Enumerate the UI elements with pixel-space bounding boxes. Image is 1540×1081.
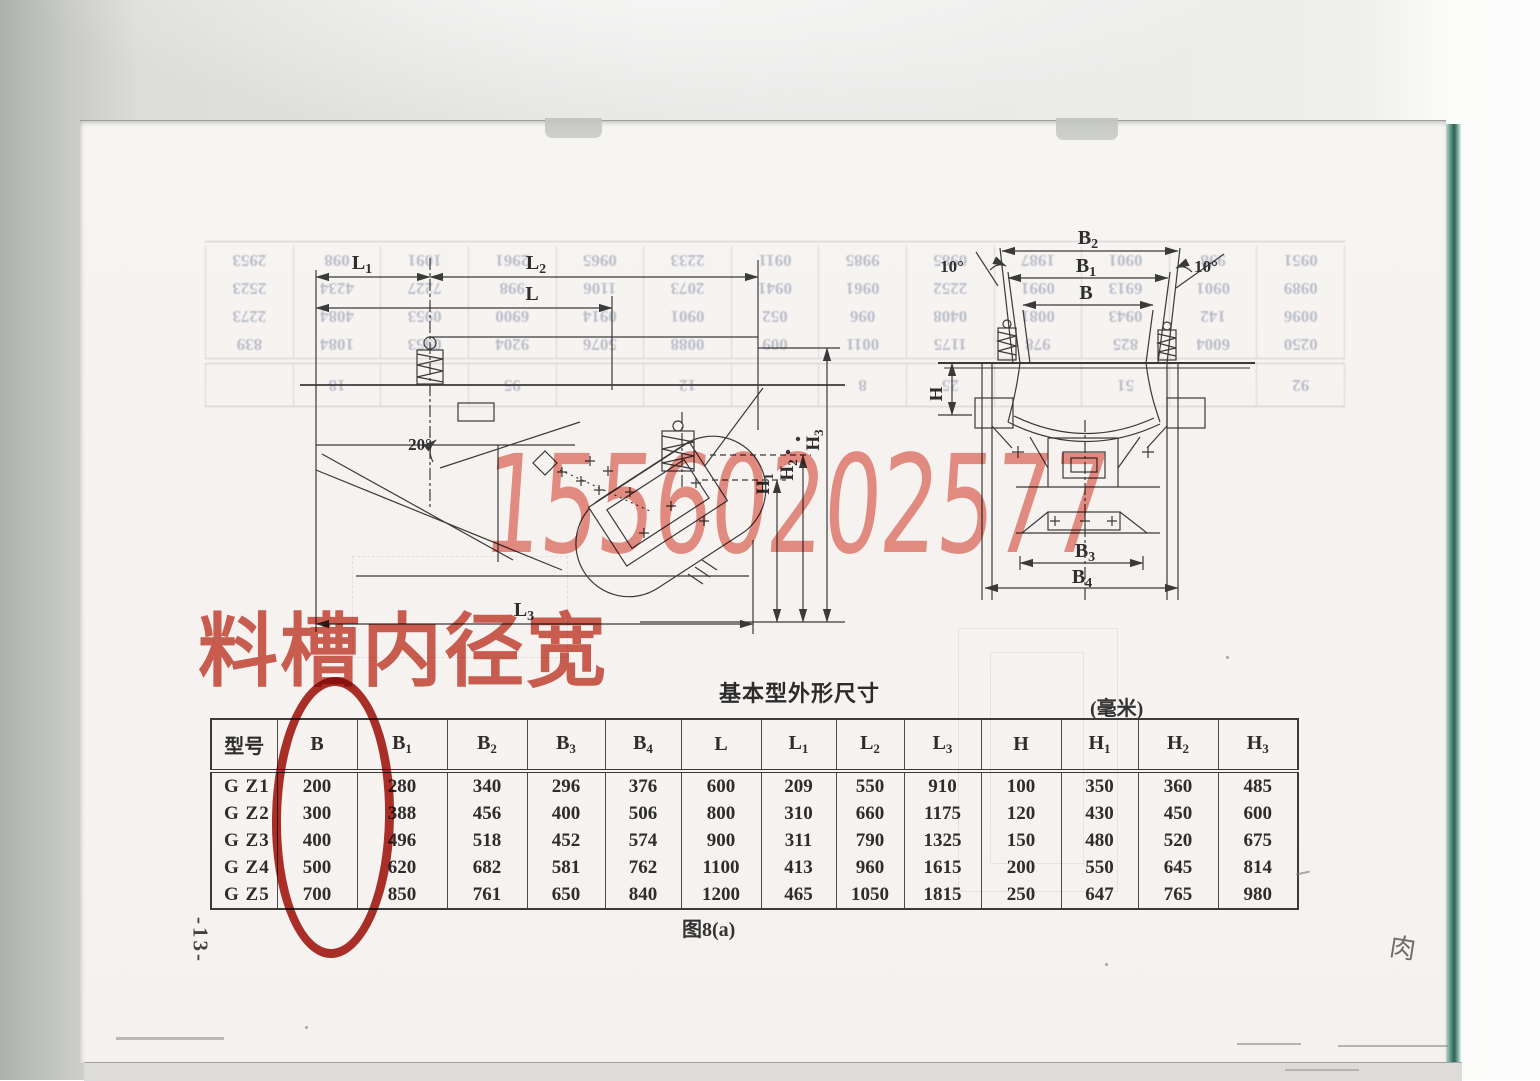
cell-value: 910 (904, 771, 981, 800)
cell-value: 310 (761, 800, 836, 827)
cell-model: G Z1 (211, 771, 277, 800)
label-B1: B1 (1076, 255, 1096, 280)
speck (1226, 656, 1229, 659)
bleedthrough-cell: 2953 (205, 246, 294, 274)
label-H: H (930, 386, 947, 401)
bowl-wall (1146, 363, 1160, 422)
cell-value: 250 (981, 881, 1061, 909)
foot-block (1167, 398, 1205, 428)
cell-value: 200 (981, 854, 1061, 881)
bleedthrough-cell: 0096 (1257, 302, 1345, 330)
col-header: L (681, 719, 761, 771)
cell-model: G Z2 (211, 800, 277, 827)
cell-value: 150 (981, 827, 1061, 854)
cell-value: 1175 (904, 800, 981, 827)
cell-value: 645 (1138, 854, 1218, 881)
label-L2: L2 (526, 252, 546, 277)
cell-value: 456 (447, 800, 527, 827)
cell-value: 430 (1061, 800, 1138, 827)
label-B: B (1079, 282, 1092, 304)
watermark-phone: 15560202577 (479, 438, 1112, 574)
cell-value: 765 (1138, 881, 1218, 909)
bleedthrough-cell: 2523 (205, 274, 294, 302)
col-header: H1 (1061, 719, 1138, 771)
cell-value: 647 (1061, 881, 1138, 909)
cell-value: 465 (761, 881, 836, 909)
speck (305, 1026, 308, 1029)
spring-symbol (998, 320, 1016, 360)
cell-value: 1050 (836, 881, 904, 909)
cell-value: 840 (605, 881, 681, 909)
cell-value: 506 (605, 800, 681, 827)
col-header: B2 (447, 719, 527, 771)
cell-value: 360 (1138, 771, 1218, 800)
col-header-model: 型号 (211, 719, 277, 771)
cell-value: 574 (605, 827, 681, 854)
cell-model: G Z4 (211, 854, 277, 881)
scan-shadow-notch (545, 118, 602, 138)
bleedthrough-cell: 92 (1257, 364, 1345, 406)
cell-value: 376 (605, 771, 681, 800)
angle-leader (976, 252, 998, 286)
cell-value: 790 (836, 827, 904, 854)
speck (1105, 963, 1108, 966)
col-header: L1 (761, 719, 836, 771)
scan-smudge (1237, 1043, 1301, 1045)
cell-value: 400 (527, 800, 605, 827)
label-B2: B2 (1078, 227, 1098, 252)
cell-value: 800 (681, 800, 761, 827)
col-header: H (981, 719, 1061, 771)
cell-value: 600 (1218, 800, 1298, 827)
cell-value: 1100 (681, 854, 761, 881)
cell-value: 350 (1061, 771, 1138, 800)
cell-value: 960 (836, 854, 904, 881)
cell-value: 660 (836, 800, 904, 827)
cell-value: 480 (1061, 827, 1138, 854)
cell-value: 120 (981, 800, 1061, 827)
foot-block (975, 398, 1013, 428)
cell-value: 814 (1218, 854, 1298, 881)
bleedthrough-cell: 839 (205, 330, 294, 358)
bowl-wall (1008, 363, 1020, 422)
scan-smudge (1285, 1069, 1359, 1071)
col-header: B4 (605, 719, 681, 771)
cell-value: 518 (447, 827, 527, 854)
scan-shadow-notch (1056, 118, 1118, 140)
red-annotation-text: 料槽内径宽 (198, 604, 608, 700)
cell-value: 296 (527, 771, 605, 800)
scan-smudge (1338, 1045, 1448, 1047)
cell-value: 1200 (681, 881, 761, 909)
cell-value: 485 (1218, 771, 1298, 800)
cell-value: 209 (761, 771, 836, 800)
cell-value: 581 (527, 854, 605, 881)
label-L1: L1 (352, 252, 372, 277)
col-header: L3 (904, 719, 981, 771)
figure-caption: 图8(a) (682, 913, 735, 942)
page-number: -13- (188, 891, 213, 991)
col-header: B3 (527, 719, 605, 771)
cell-value: 520 (1138, 827, 1218, 854)
cell-model: G Z5 (211, 881, 277, 909)
cell-value: 900 (681, 827, 761, 854)
cell-value: 682 (447, 854, 527, 881)
cell-value: 311 (761, 827, 836, 854)
table-title: 基本型外形尺寸 (719, 676, 880, 708)
bleedthrough-cell: 0989 (1257, 274, 1345, 302)
col-header: H3 (1218, 719, 1298, 771)
cell-value: 550 (836, 771, 904, 800)
cell-value: 761 (447, 881, 527, 909)
scan-smudge (116, 1037, 224, 1040)
bleedthrough-cell (205, 364, 294, 406)
label-L: L (525, 283, 538, 305)
cell-value: 100 (981, 771, 1061, 800)
label-angle-right: 10° (1194, 257, 1218, 276)
cell-value: 340 (447, 771, 527, 800)
cell-value: 550 (1061, 854, 1138, 881)
col-header: L2 (836, 719, 904, 771)
bleedthrough-cell: 0951 (1257, 246, 1345, 274)
col-header: H2 (1138, 719, 1218, 771)
cell-value: 1325 (904, 827, 981, 854)
cell-value: 452 (527, 827, 605, 854)
cell-value: 762 (605, 854, 681, 881)
cell-value: 1815 (904, 881, 981, 909)
cell-value: 1615 (904, 854, 981, 881)
cell-value: 450 (1138, 800, 1218, 827)
cell-value: 600 (681, 771, 761, 800)
label-angle-20: 20° (408, 435, 432, 454)
plus-mark (1142, 446, 1154, 458)
cell-model: G Z3 (211, 827, 277, 854)
table-unit: (毫米) (1090, 692, 1143, 721)
book-edge (1446, 124, 1461, 1062)
cell-value: 675 (1218, 827, 1298, 854)
bleedthrough-cell: 0250 (1257, 330, 1345, 358)
cell-value: 980 (1218, 881, 1298, 909)
scanned-document-scene: 0250600482597811750011009008850769204095… (0, 0, 1540, 1080)
cell-value: 650 (527, 881, 605, 909)
page-bottom-edge (84, 1062, 1462, 1081)
bleedthrough-cell: 2273 (205, 302, 294, 330)
label-angle-left: 10° (940, 257, 964, 276)
cell-value: 413 (761, 854, 836, 881)
